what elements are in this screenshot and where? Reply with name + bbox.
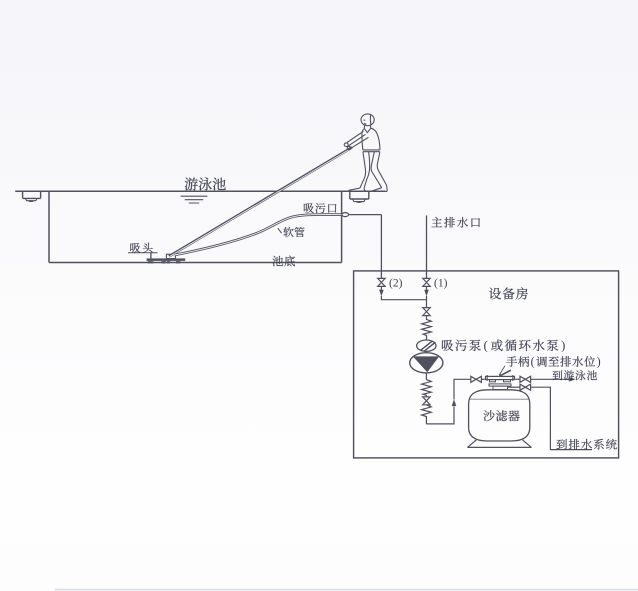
svg-text:(: (: [484, 338, 488, 353]
svg-text:(: (: [531, 354, 535, 368]
svg-text:(2): (2): [389, 278, 403, 290]
svg-text:(1): (1): [434, 278, 448, 290]
svg-text:): ): [597, 354, 601, 368]
svg-text:): ): [561, 338, 565, 353]
